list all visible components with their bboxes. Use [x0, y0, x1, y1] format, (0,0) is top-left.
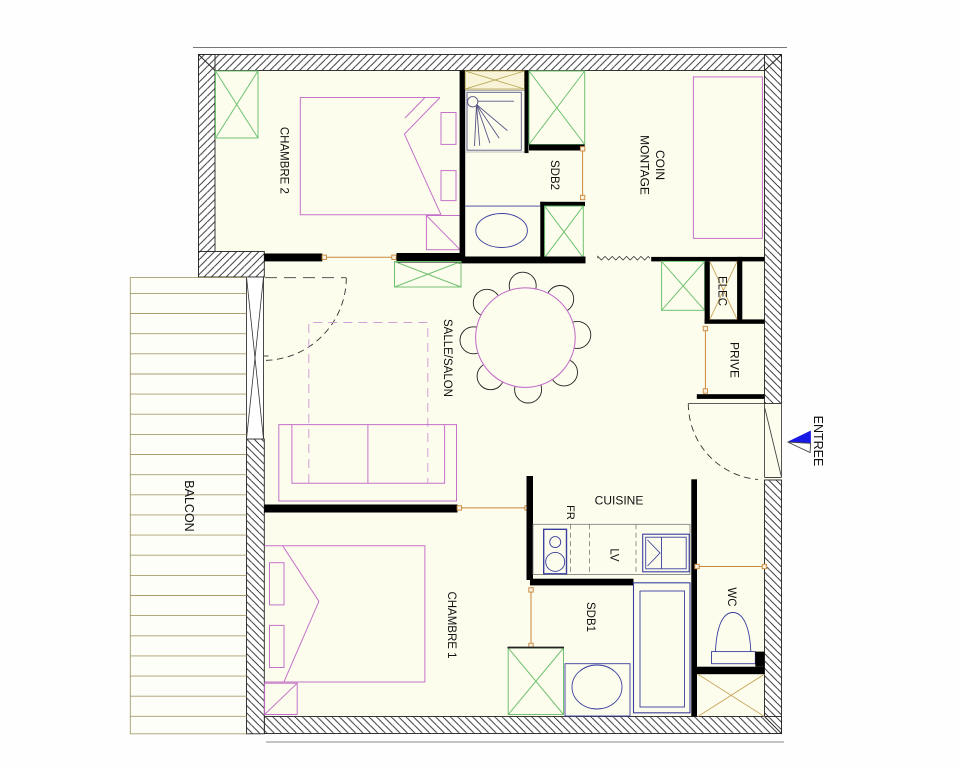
- svg-text:SDB2: SDB2: [548, 160, 560, 190]
- svg-text:WC: WC: [725, 587, 737, 606]
- svg-text:SDB1: SDB1: [584, 602, 596, 632]
- svg-text:MONTAGE: MONTAGE: [638, 135, 652, 195]
- svg-text:BALCON: BALCON: [182, 480, 196, 531]
- svg-text:SALLE/SALON: SALLE/SALON: [441, 319, 453, 397]
- svg-text:LV: LV: [608, 548, 620, 562]
- svg-text:ENTREE: ENTREE: [811, 416, 825, 467]
- svg-text:CHAMBRE 1: CHAMBRE 1: [445, 591, 457, 658]
- svg-text:PRIVE: PRIVE: [728, 342, 742, 378]
- svg-text:CHAMBRE 2: CHAMBRE 2: [278, 127, 290, 194]
- svg-text:CUISINE: CUISINE: [595, 494, 644, 508]
- svg-text:ELEC: ELEC: [716, 276, 728, 306]
- svg-text:FR: FR: [564, 505, 576, 520]
- svg-text:COIN: COIN: [653, 150, 667, 180]
